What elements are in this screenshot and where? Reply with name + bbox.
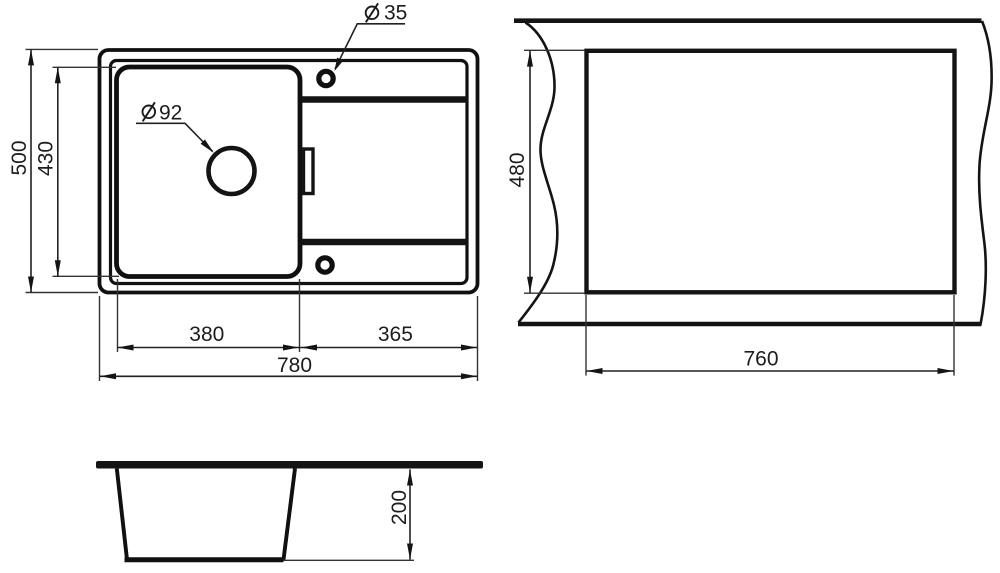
svg-text:92: 92: [159, 101, 182, 124]
svg-text:380: 380: [189, 323, 224, 346]
svg-text:365: 365: [378, 323, 413, 346]
svg-text:35: 35: [384, 2, 407, 25]
svg-text:500: 500: [8, 140, 31, 175]
svg-text:200: 200: [388, 490, 411, 525]
svg-text:780: 780: [277, 354, 312, 377]
svg-text:760: 760: [743, 348, 778, 371]
svg-text:430: 430: [34, 141, 57, 176]
svg-text:480: 480: [506, 152, 529, 187]
